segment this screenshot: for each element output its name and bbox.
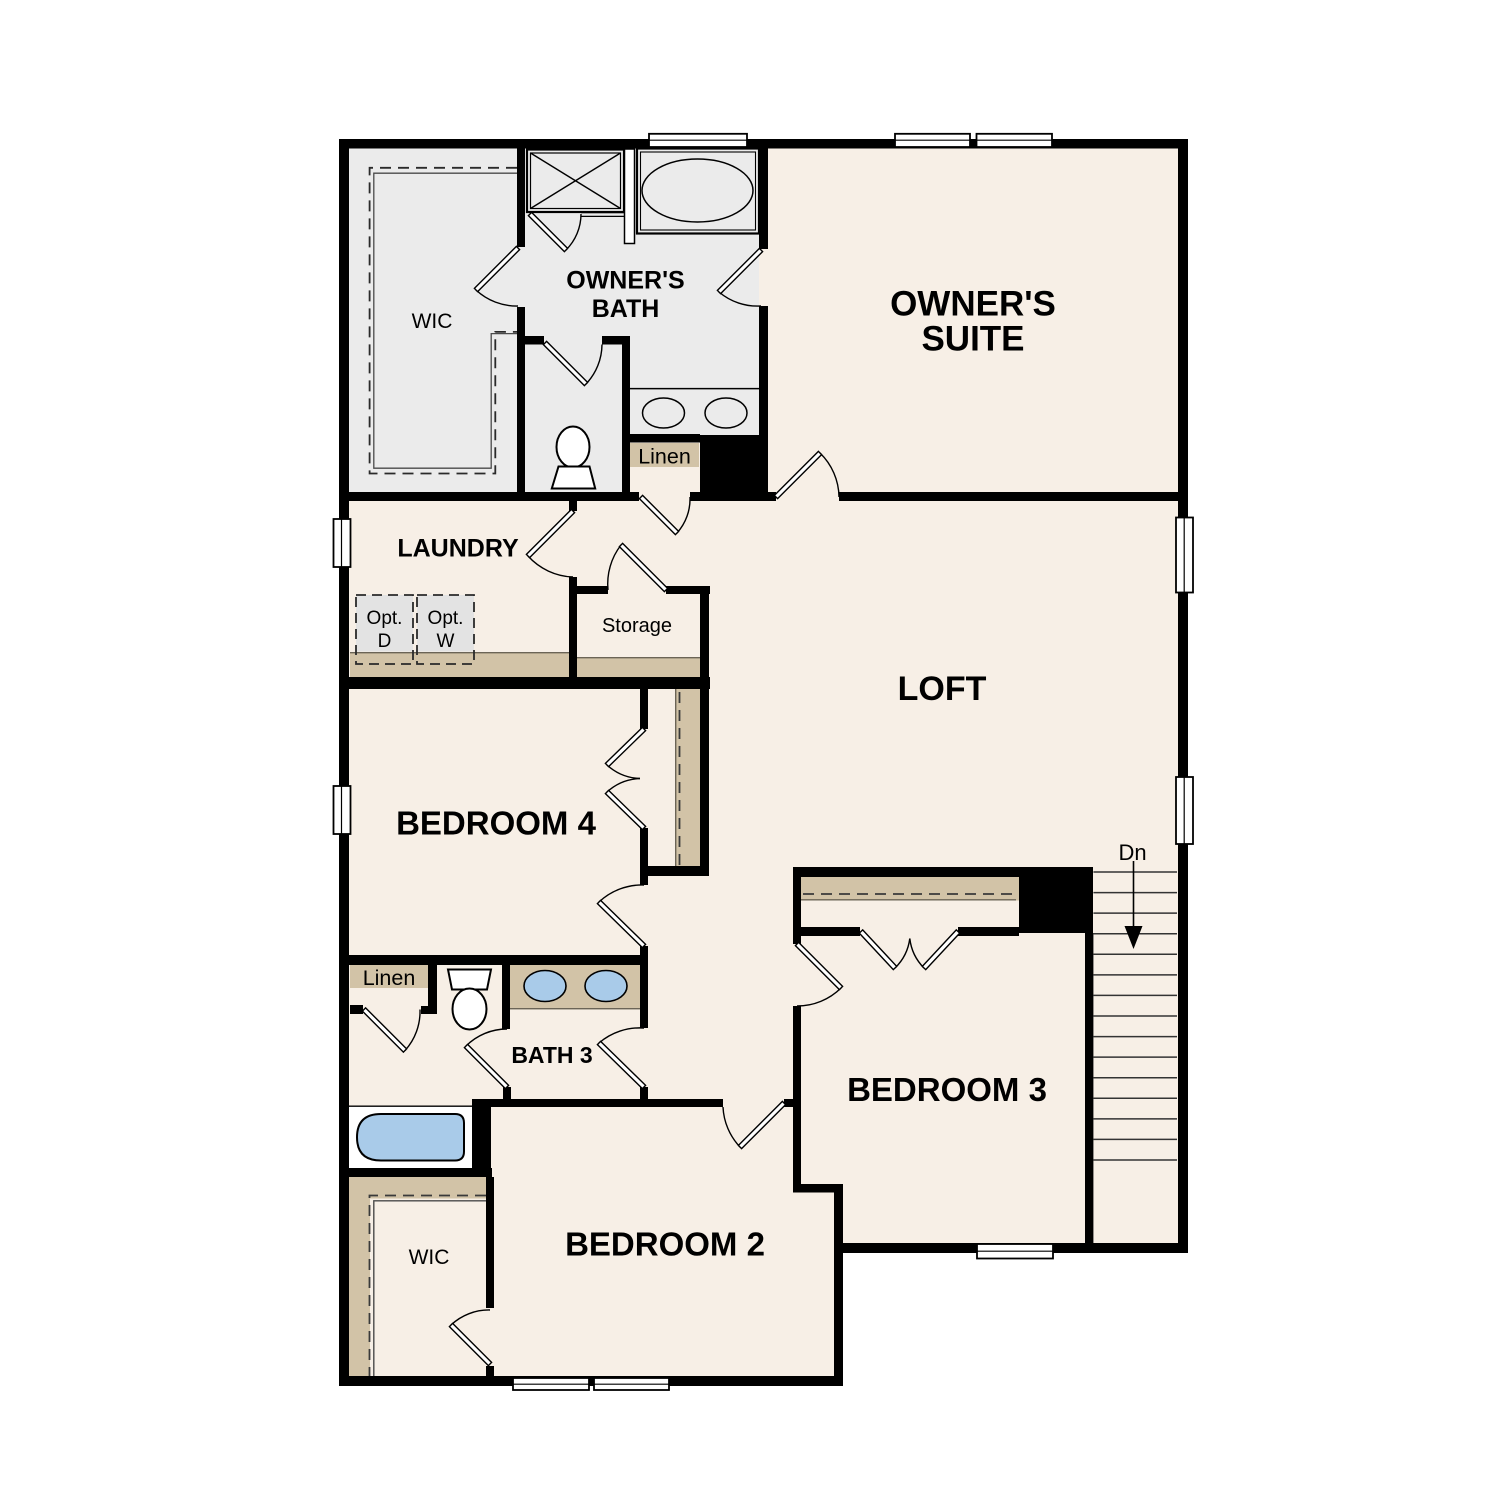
svg-text:BATH 3: BATH 3 — [511, 1042, 592, 1068]
svg-text:OWNER'S: OWNER'S — [890, 285, 1056, 324]
svg-text:BEDROOM 4: BEDROOM 4 — [396, 805, 597, 842]
svg-text:W: W — [437, 631, 455, 652]
svg-text:BEDROOM 3: BEDROOM 3 — [847, 1071, 1047, 1108]
svg-text:SUITE: SUITE — [921, 320, 1024, 359]
svg-text:BATH: BATH — [592, 295, 660, 323]
svg-text:Opt.: Opt. — [428, 608, 464, 629]
svg-text:WIC: WIC — [409, 1246, 450, 1269]
svg-text:LAUNDRY: LAUNDRY — [397, 535, 519, 563]
svg-text:LOFT: LOFT — [898, 670, 987, 708]
svg-text:Opt.: Opt. — [367, 608, 403, 629]
svg-text:Linen: Linen — [638, 445, 691, 469]
svg-text:D: D — [378, 631, 392, 652]
svg-text:Linen: Linen — [363, 966, 416, 990]
svg-text:BEDROOM 2: BEDROOM 2 — [565, 1226, 765, 1263]
svg-text:WIC: WIC — [412, 310, 453, 333]
svg-text:Dn: Dn — [1118, 840, 1146, 865]
svg-text:OWNER'S: OWNER'S — [566, 267, 684, 295]
svg-text:Storage: Storage — [602, 615, 672, 637]
